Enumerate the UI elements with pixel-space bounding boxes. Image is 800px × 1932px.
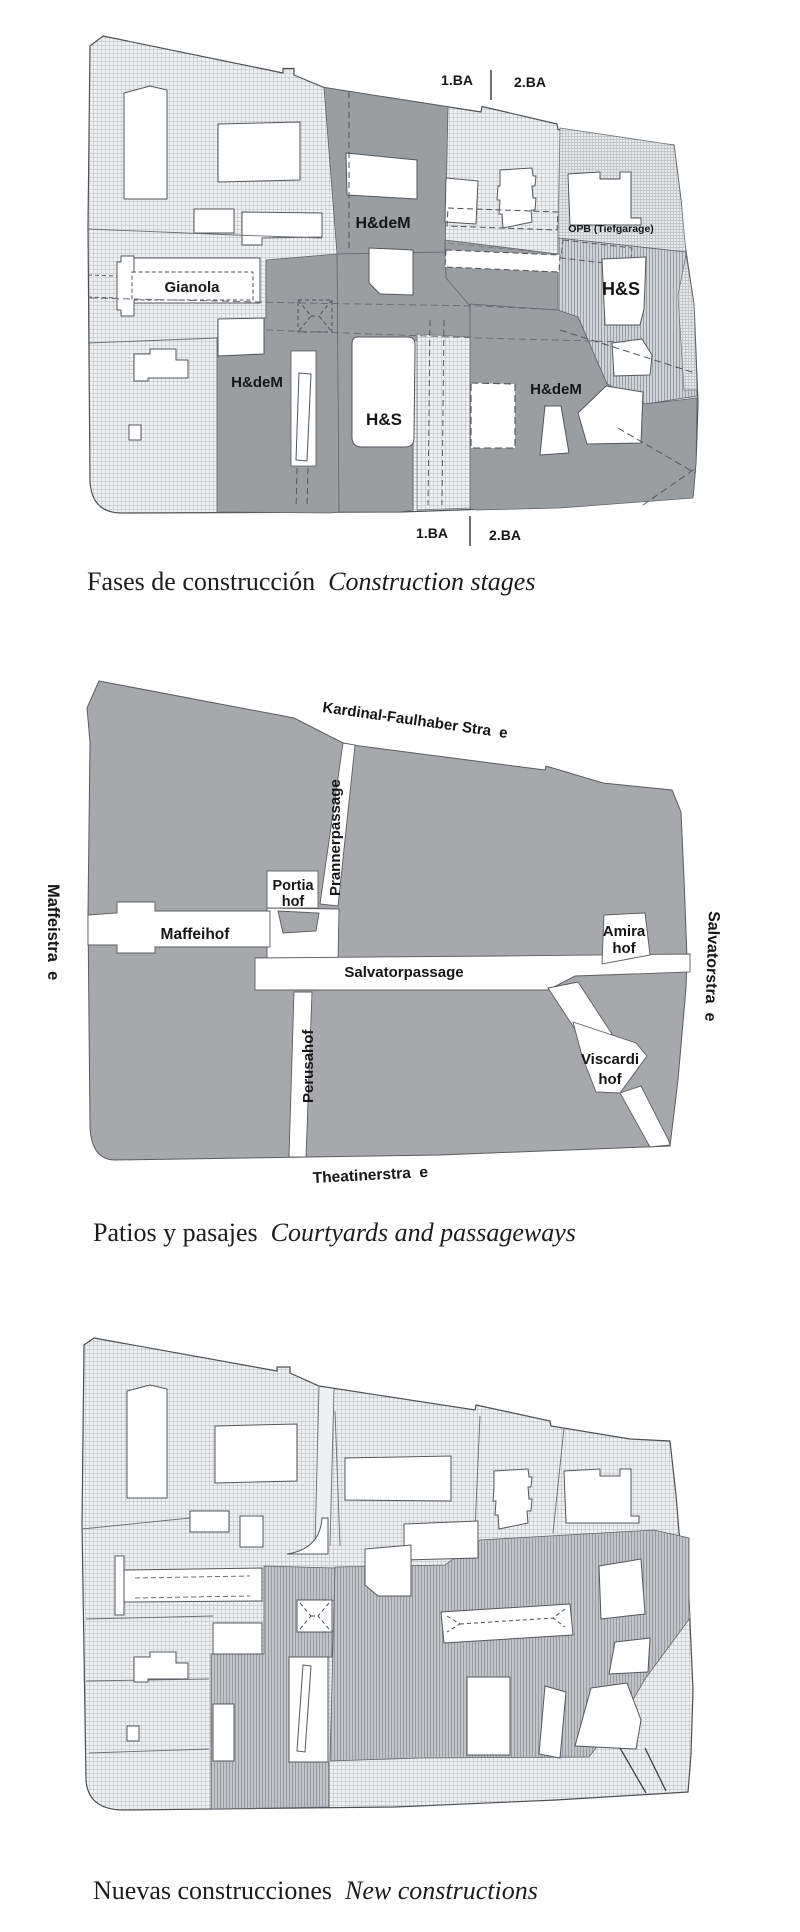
svg-text:Salvatorstra e: Salvatorstra e xyxy=(701,911,722,1022)
svg-text:2.BA: 2.BA xyxy=(489,527,521,543)
svg-text:Fases de construcción Constru: Fases de construcción Construction stage… xyxy=(87,567,535,596)
svg-text:Portia: Portia xyxy=(272,878,314,894)
svg-text:Gianola: Gianola xyxy=(164,279,220,296)
svg-text:Patios y pasajes Courtyards a: Patios y pasajes Courtyards and passagew… xyxy=(93,1218,576,1247)
svg-text:Prannerpassage: Prannerpassage xyxy=(327,779,344,896)
svg-text:OPB (Tiefgarage): OPB (Tiefgarage) xyxy=(568,223,654,235)
svg-text:Theatinerstra e: Theatinerstra e xyxy=(312,1164,429,1187)
svg-text:Viscardi: Viscardi xyxy=(581,1051,639,1068)
svg-text:hof: hof xyxy=(598,1071,622,1088)
svg-text:hof: hof xyxy=(282,894,305,910)
svg-text:hof: hof xyxy=(612,940,636,957)
svg-text:H&S: H&S xyxy=(602,279,640,299)
svg-text:Maffeistra e: Maffeistra e xyxy=(44,884,62,980)
svg-text:1.BA: 1.BA xyxy=(416,525,448,541)
svg-text:1.BA: 1.BA xyxy=(441,72,473,88)
svg-text:Perusahof: Perusahof xyxy=(300,1029,317,1103)
svg-text:Kardinal-Faulhaber Stra e: Kardinal-Faulhaber Stra e xyxy=(321,699,508,742)
svg-text:2.BA: 2.BA xyxy=(514,74,546,90)
svg-text:H&deM: H&deM xyxy=(231,374,283,391)
svg-text:Salvatorpassage: Salvatorpassage xyxy=(344,964,463,981)
svg-text:H&deM: H&deM xyxy=(530,381,582,398)
svg-text:H&deM: H&deM xyxy=(355,215,410,232)
svg-text:H&S: H&S xyxy=(366,410,402,429)
svg-text:Amira: Amira xyxy=(603,923,646,940)
svg-text:Maffeihof: Maffeihof xyxy=(161,926,231,943)
svg-text:Nuevas construcciones New con: Nuevas construcciones New constructions xyxy=(93,1876,538,1905)
